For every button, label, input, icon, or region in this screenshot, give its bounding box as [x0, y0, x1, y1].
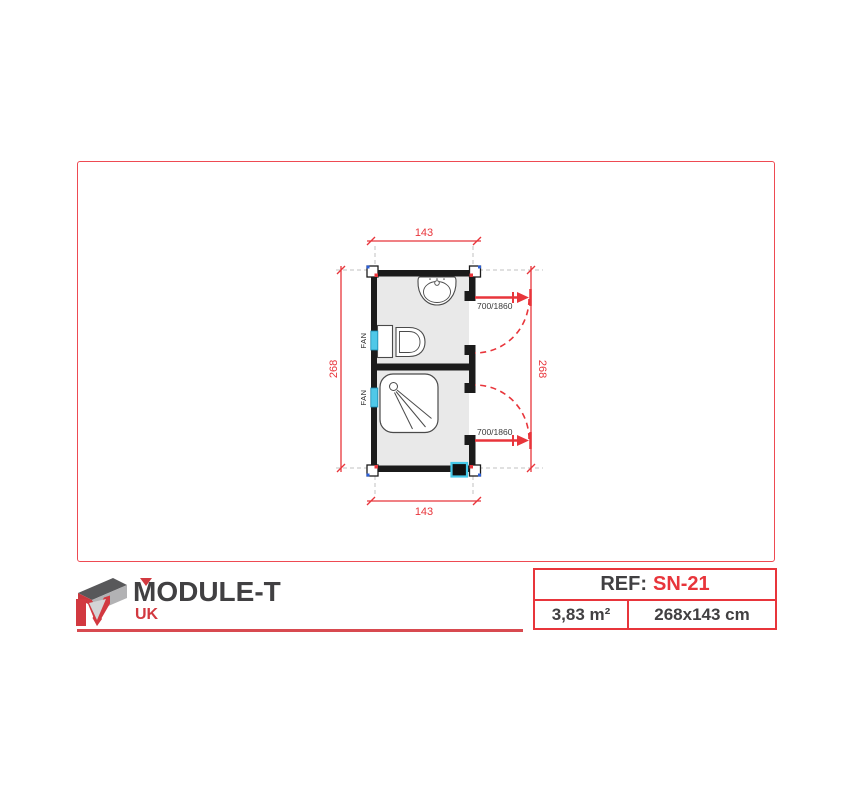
- door-bottom-size-label: 700/1860: [477, 427, 513, 437]
- size-cell: 268x143 cm: [629, 601, 775, 628]
- dim-height-left: 268: [328, 360, 340, 378]
- drain-box: [452, 463, 468, 477]
- floor-plan: 143 143 268 268: [320, 218, 565, 523]
- area-cell: 3,83 m²: [535, 601, 629, 628]
- dim-height-right: 268: [536, 360, 548, 378]
- dim-width-top: 143: [415, 227, 433, 239]
- door-top-size-label: 700/1860: [477, 301, 513, 311]
- ref-value: SN-21: [653, 573, 710, 596]
- shower-tray: [380, 374, 438, 433]
- specs-row: 3,83 m² 268x143 cm: [535, 601, 775, 628]
- ref-label: REF:: [600, 573, 647, 596]
- ref-row: REF: SN-21: [535, 570, 775, 601]
- module-t-logo-icon: [64, 570, 130, 632]
- fan-label-lower: FAN: [359, 389, 368, 405]
- door-bottom: [475, 385, 531, 449]
- dim-width-bottom: 143: [415, 506, 433, 518]
- wordmark-accent-triangle: [140, 578, 152, 586]
- brand-wordmark: MODULE-T: [133, 578, 333, 606]
- title-block: REF: SN-21 3,83 m² 268x143 cm: [533, 568, 777, 630]
- brand-underline: [77, 629, 523, 632]
- drawing-sheet: 143 143 268 268: [0, 0, 851, 792]
- door-top: [475, 289, 531, 353]
- fan-label-upper: FAN: [359, 332, 368, 348]
- toilet: [378, 326, 426, 358]
- brand-region: UK: [135, 606, 158, 624]
